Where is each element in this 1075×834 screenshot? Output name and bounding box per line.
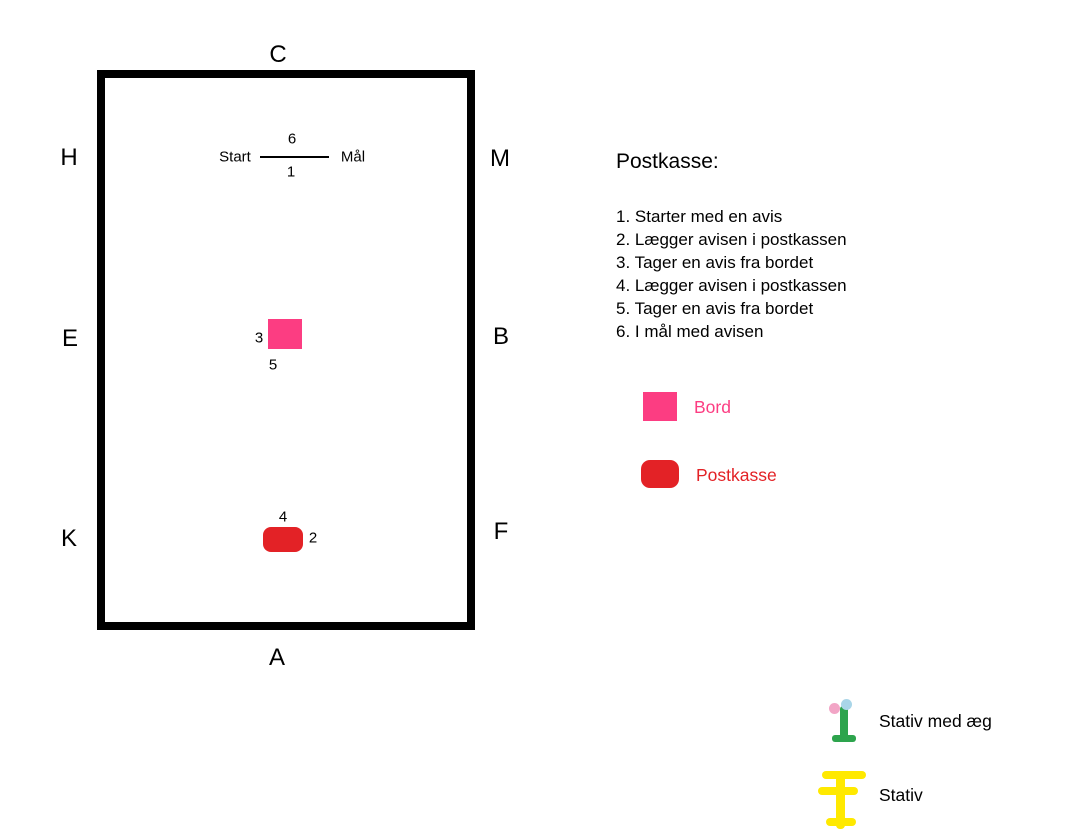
- stand-with-eggs-label: Stativ med æg: [879, 712, 992, 730]
- legend-postkasse-swatch: [641, 460, 679, 488]
- legend-bord-swatch: [643, 392, 677, 421]
- arena-letter-a: A: [269, 646, 285, 670]
- arena-letter-m: M: [490, 147, 510, 171]
- egg-pink-icon: [829, 703, 840, 714]
- start-label: Start: [219, 150, 251, 165]
- line-number-above: 6: [288, 132, 296, 147]
- arena-letter-b: B: [493, 325, 509, 349]
- stand-icon: [816, 768, 868, 830]
- arena-letter-f: F: [494, 520, 509, 544]
- arena-letter-e: E: [62, 327, 78, 351]
- arena-letter-h: H: [60, 146, 77, 170]
- exercise-title: Postkasse:: [616, 150, 719, 174]
- stand-pole: [840, 706, 848, 738]
- arena-letter-c: C: [269, 43, 286, 67]
- step-item: 1. Starter med en avis: [616, 205, 847, 228]
- step-item: 3. Tager en avis fra bordet: [616, 251, 847, 274]
- postkasse-box: [263, 527, 303, 552]
- bord-number-below: 5: [269, 358, 277, 373]
- stand-bottom-bar: [826, 818, 856, 826]
- postkasse-number-above: 4: [279, 510, 287, 525]
- step-item: 5. Tager en avis fra bordet: [616, 297, 847, 320]
- bord-square: [268, 319, 302, 349]
- stand-base: [832, 735, 856, 742]
- bord-number-left: 3: [255, 331, 263, 346]
- postkasse-number-right: 2: [309, 531, 317, 546]
- legend-postkasse-label: Postkasse: [696, 466, 777, 484]
- goal-label: Mål: [341, 150, 365, 165]
- egg-blue-icon: [841, 699, 852, 710]
- exercise-steps: 1. Starter med en avis 2. Lægger avisen …: [616, 205, 847, 343]
- step-item: 2. Lægger avisen i postkassen: [616, 228, 847, 251]
- stand-label: Stativ: [879, 786, 923, 804]
- line-number-below: 1: [287, 165, 295, 180]
- arena-letter-k: K: [61, 527, 77, 551]
- step-item: 6. I mål med avisen: [616, 320, 847, 343]
- legend-bord-label: Bord: [694, 398, 731, 416]
- stand-with-eggs-icon: [826, 696, 860, 744]
- step-item: 4. Lægger avisen i postkassen: [616, 274, 847, 297]
- start-finish-line: [260, 156, 329, 158]
- course-diagram: C A H E K M B F Start 6 1 Mål 3 5 4 2 Po…: [0, 0, 1075, 834]
